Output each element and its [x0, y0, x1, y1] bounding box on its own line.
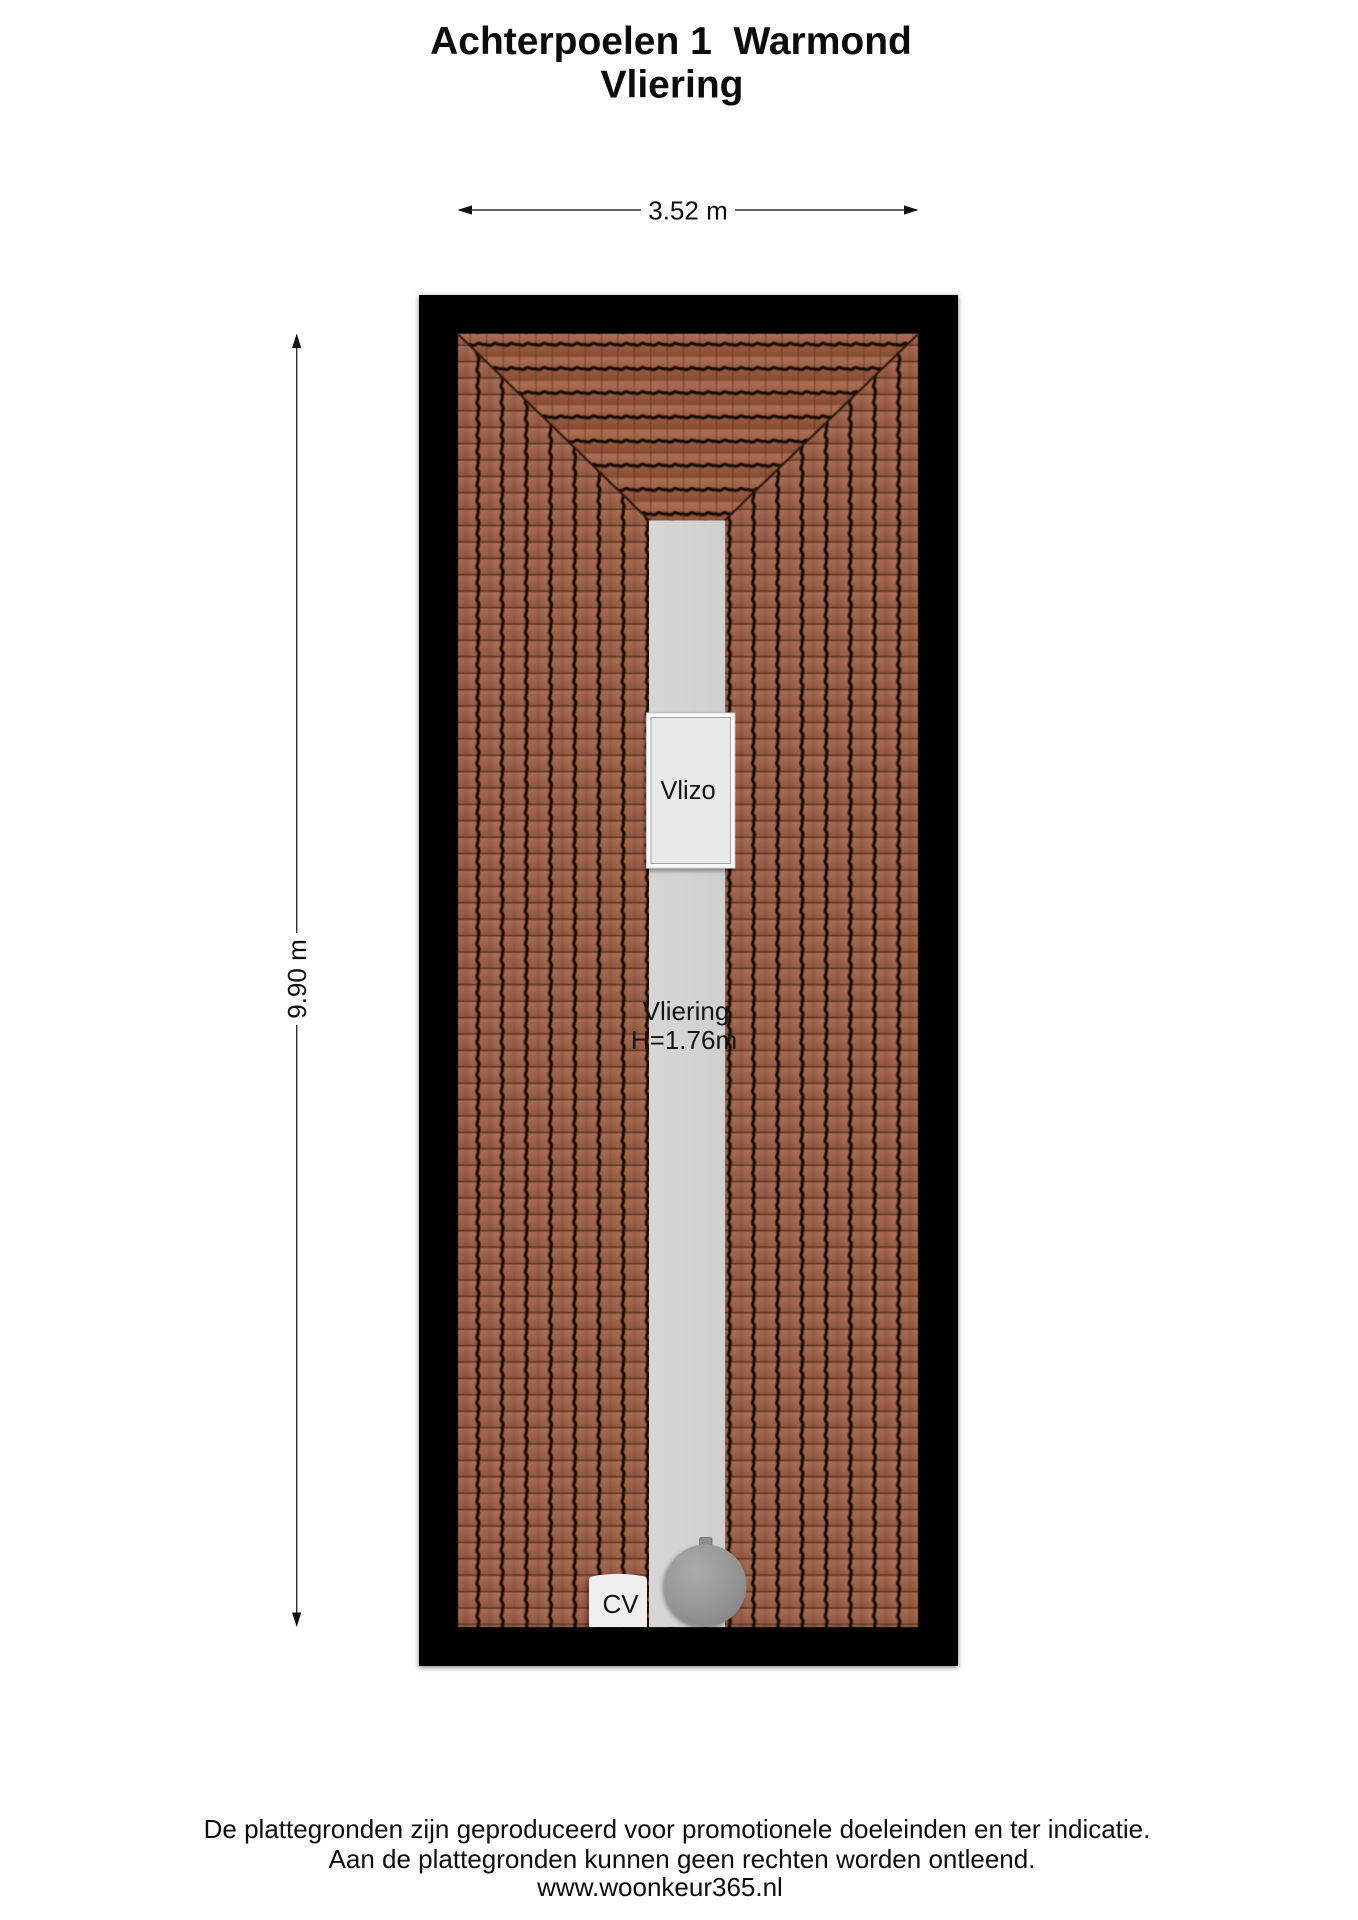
svg-text:De plattegronden zijn geproduc: De plattegronden zijn geproduceerd voor … [204, 1814, 1151, 1844]
svg-text:www.woonkeur365.nl: www.woonkeur365.nl [536, 1872, 783, 1902]
svg-text:Achterpoelen 1 Warmond: Achterpoelen 1 Warmond [430, 20, 912, 63]
svg-text:Aan de plattegronden kunnen ge: Aan de plattegronden kunnen geen rechten… [329, 1844, 1036, 1874]
svg-text:3.52 m: 3.52 m [648, 195, 728, 225]
svg-text:Vlizo: Vlizo [660, 777, 715, 805]
svg-text:Vliering: Vliering [643, 996, 730, 1026]
svg-text:CV: CV [602, 1589, 639, 1619]
svg-text:9.90 m: 9.90 m [282, 939, 312, 1019]
svg-text:H=1.76m: H=1.76m [631, 1025, 737, 1055]
svg-text:Vliering: Vliering [600, 63, 743, 106]
